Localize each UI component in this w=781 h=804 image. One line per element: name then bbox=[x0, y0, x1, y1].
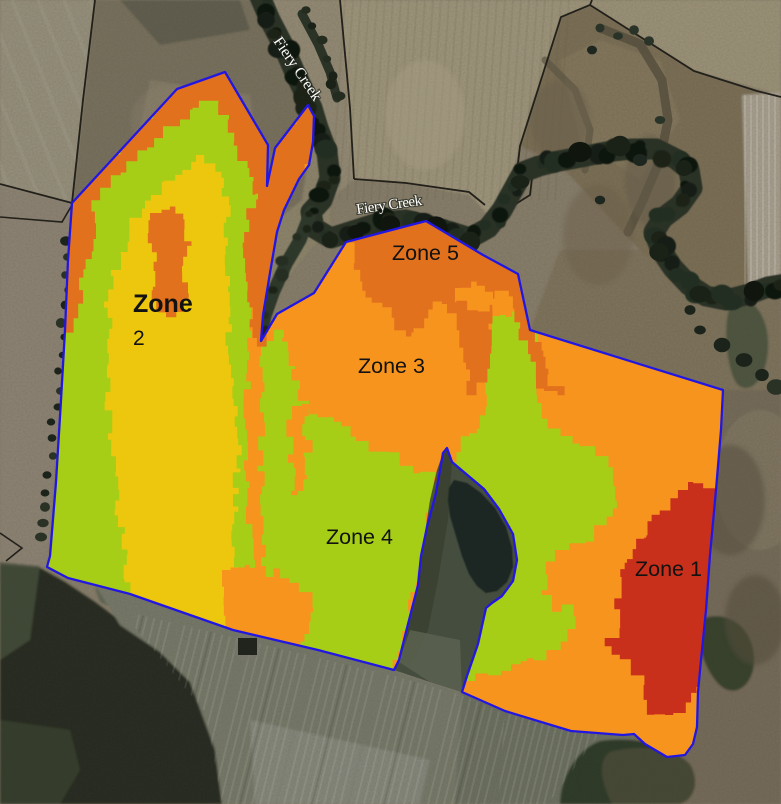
svg-text:Zone 5: Zone 5 bbox=[392, 241, 459, 265]
svg-text:Zone: Zone bbox=[133, 290, 193, 318]
svg-text:Zone 1: Zone 1 bbox=[635, 557, 702, 581]
svg-text:Zone 3: Zone 3 bbox=[358, 354, 425, 378]
svg-text:Zone 4: Zone 4 bbox=[326, 525, 393, 549]
svg-text:2: 2 bbox=[133, 327, 145, 350]
